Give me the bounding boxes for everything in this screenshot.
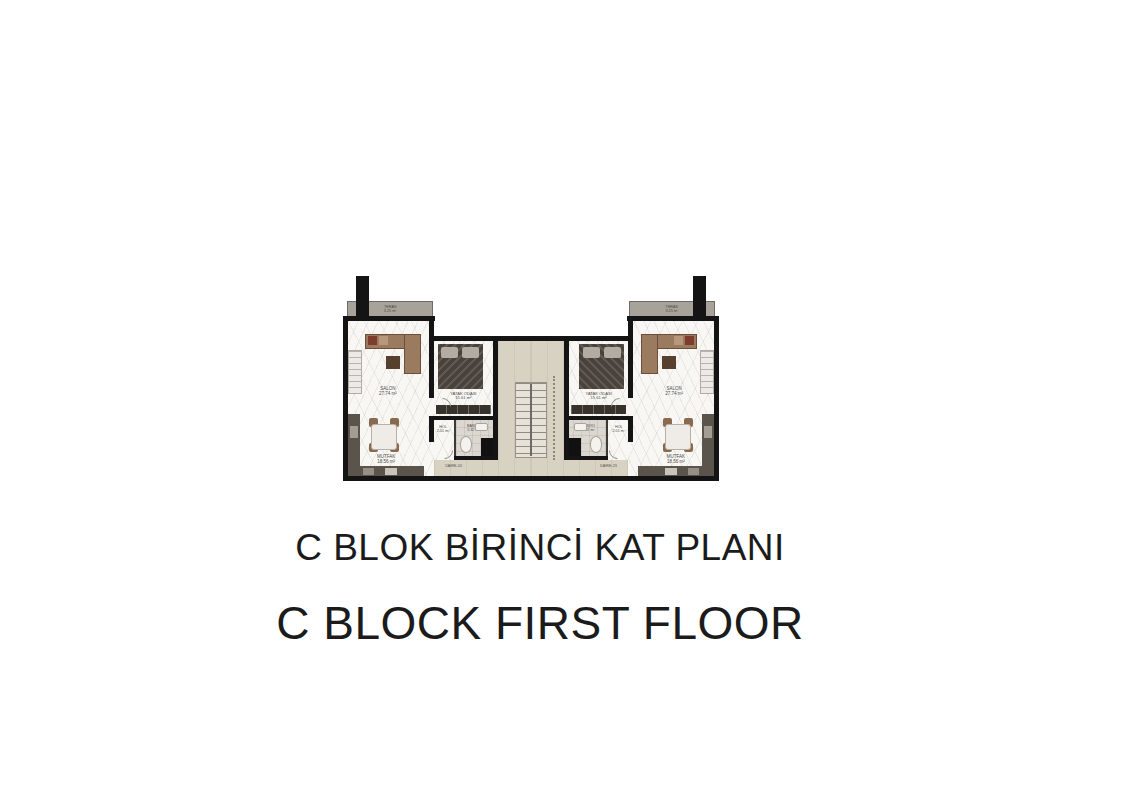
sofa-pillow <box>685 336 694 345</box>
sofa-pillow <box>368 336 377 345</box>
sofa-arm <box>404 334 421 374</box>
kitchen-appliance <box>665 468 677 475</box>
unit-daire-23: TERAS3.25 m² SALON27.74 m² MUTFAK18.56 m… <box>531 276 721 486</box>
toilet <box>460 436 472 453</box>
wall <box>429 336 531 341</box>
dining-table <box>371 424 397 450</box>
wall <box>606 420 608 456</box>
title-english: C BLOCK FIRST FLOOR <box>0 596 1080 650</box>
room-label-salon: SALON27.74 m² <box>359 382 417 400</box>
toilet <box>590 436 602 453</box>
washbasin <box>574 423 587 431</box>
floor-plan: TERAS3.25 m² SALON27.74 m² MUTFAK18.56 m… <box>341 276 721 488</box>
kitchen-appliance <box>688 468 699 475</box>
wall <box>493 336 498 460</box>
wall <box>564 456 608 460</box>
stair-rail <box>530 384 532 456</box>
wall <box>531 476 719 481</box>
kitchen-appliance <box>363 468 374 475</box>
wall <box>531 336 633 341</box>
unit-number-label: DAIRE-24 <box>431 461 477 472</box>
kitchen-appliance <box>385 468 397 475</box>
bed-pillow <box>441 347 458 358</box>
washbasin <box>475 423 488 431</box>
stair-dashed-line <box>553 376 555 460</box>
wall <box>714 316 719 481</box>
title-turkish: C BLOK BİRİNCİ KAT PLANI <box>0 527 1080 569</box>
wall <box>429 416 498 420</box>
wall <box>343 316 348 481</box>
shaft <box>567 438 581 456</box>
wall <box>343 476 531 481</box>
page: TERAS3.25 m² SALON27.74 m² MUTFAK18.56 m… <box>0 0 1132 800</box>
room-label-mutfak: MUTFAK18.56 m² <box>355 450 417 468</box>
dining-table <box>665 424 691 450</box>
bed-pillow <box>604 347 621 358</box>
sofa-pillow <box>379 336 388 345</box>
wall <box>564 416 633 420</box>
wall <box>429 321 434 398</box>
kitchen-sink <box>350 426 358 438</box>
kitchen-sink <box>704 426 712 438</box>
unit-daire-24: TERAS3.25 m² SALON27.74 m² MUTFAK18.56 m… <box>341 276 531 486</box>
wall-stub <box>693 276 706 318</box>
bed-pillow <box>583 347 600 358</box>
room-label-banyo: BANYO5.32 m² <box>453 421 495 435</box>
wall <box>628 321 633 398</box>
wall <box>454 420 456 456</box>
bed-pillow <box>462 347 479 358</box>
coffee-table <box>662 356 676 369</box>
unit-number-label: DAIRE-23 <box>585 461 631 472</box>
coffee-table <box>386 356 400 369</box>
sofa-arm <box>641 334 658 374</box>
wall <box>454 456 498 460</box>
room-label-salon: SALON27.74 m² <box>645 382 703 400</box>
sofa-pillow <box>674 336 683 345</box>
wall-stub <box>356 276 369 318</box>
room-label-mutfak: MUTFAK18.56 m² <box>645 450 707 468</box>
wall <box>564 336 569 460</box>
